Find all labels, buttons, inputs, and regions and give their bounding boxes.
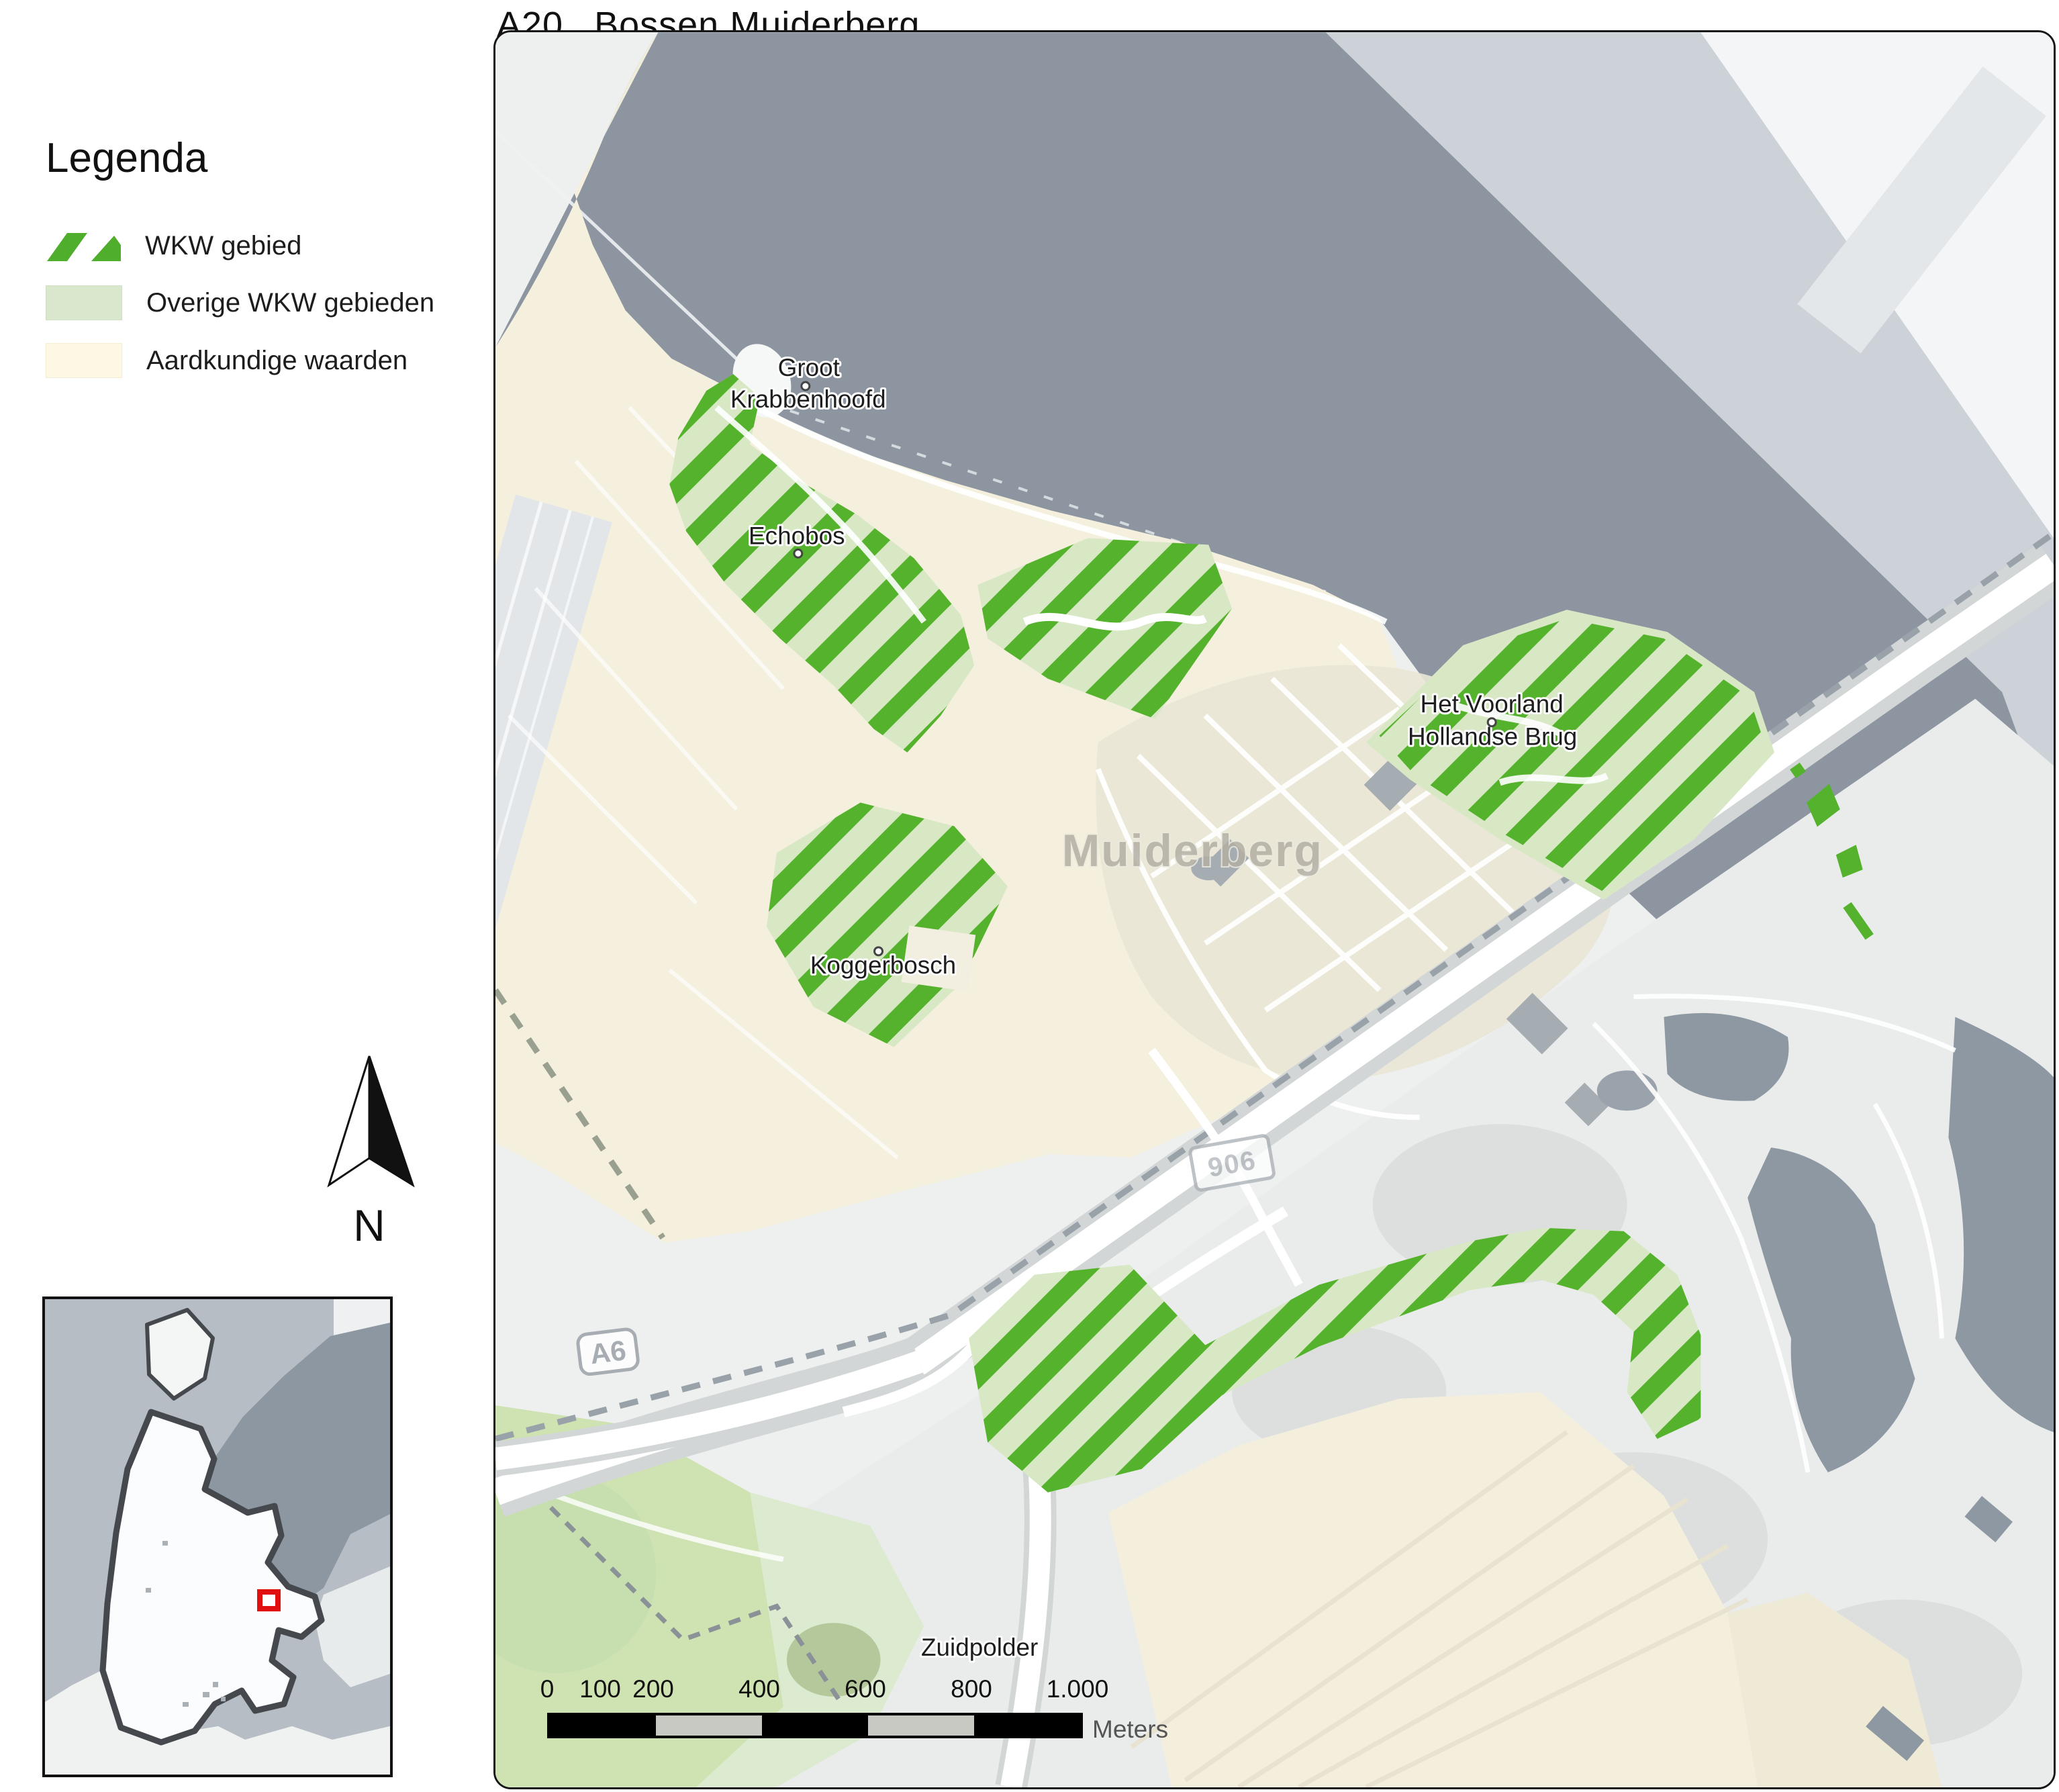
main-map: Groot Krabbenhoofd Echobos Koggerbosch H… [493, 30, 2056, 1789]
svg-text:A6: A6 [588, 1334, 628, 1370]
poi-marker-echobos [794, 549, 802, 557]
legend-label-overige: Overige WKW gebieden [146, 288, 434, 318]
scalebar-tick: 0 [540, 1675, 555, 1703]
inset-locator-map [42, 1296, 393, 1777]
overige-wkw-swatch-icon [46, 285, 122, 320]
scalebar-tick: 200 [632, 1675, 674, 1703]
map-canvas: Groot Krabbenhoofd Echobos Koggerbosch H… [495, 32, 2054, 1787]
scalebar: 0 100 200 400 600 800 1.000 Meters [547, 1675, 1218, 1749]
north-arrow: N [305, 1051, 433, 1251]
legend-label-wkw: WKW gebied [145, 231, 301, 261]
scalebar-tick: 1.000 [1047, 1675, 1109, 1703]
scalebar-tick: 800 [951, 1675, 992, 1703]
legend-label-aardkundig: Aardkundige waarden [146, 346, 408, 376]
legend-item-aardkundig: Aardkundige waarden [46, 343, 434, 378]
poi-marker-voorland [1488, 718, 1496, 726]
inset-location-marker [260, 1592, 278, 1609]
label-het-voorland: Het Voorland [1421, 690, 1564, 718]
page: { "title": {"code": "A20", "name": "Boss… [0, 0, 2059, 1792]
north-label: N [305, 1200, 433, 1251]
scalebar-tick: 100 [579, 1675, 621, 1703]
legend-item-wkw: WKW gebied [46, 229, 434, 263]
inset-map-graphic [45, 1299, 390, 1775]
legend-item-overige: Overige WKW gebieden [46, 285, 434, 320]
legend: Legenda WKW gebied Overige WKW gebieden … [46, 134, 434, 401]
scalebar-unit: Meters [1092, 1715, 1168, 1744]
north-arrow-icon [305, 1051, 433, 1195]
scalebar-tick: 600 [845, 1675, 886, 1703]
shield-a6: A6 [577, 1328, 638, 1375]
aardkundige-swatch-icon [46, 343, 122, 378]
label-groot: Groot [778, 354, 840, 381]
scalebar-bar [547, 1713, 1083, 1738]
poi-marker-koggerbosch [875, 947, 883, 955]
label-zuidpolder: Zuidpolder [921, 1634, 1038, 1661]
label-muiderberg: Muiderberg [1062, 826, 1323, 876]
scalebar-tick: 400 [738, 1675, 780, 1703]
wkw-hatch-swatch-icon [46, 229, 121, 263]
poi-marker-krabbenhoofd [802, 382, 810, 390]
label-echobos: Echobos [749, 522, 845, 549]
legend-heading: Legenda [46, 134, 434, 182]
pond [1597, 1070, 1658, 1111]
label-koggerbosch: Koggerbosch [810, 951, 956, 979]
